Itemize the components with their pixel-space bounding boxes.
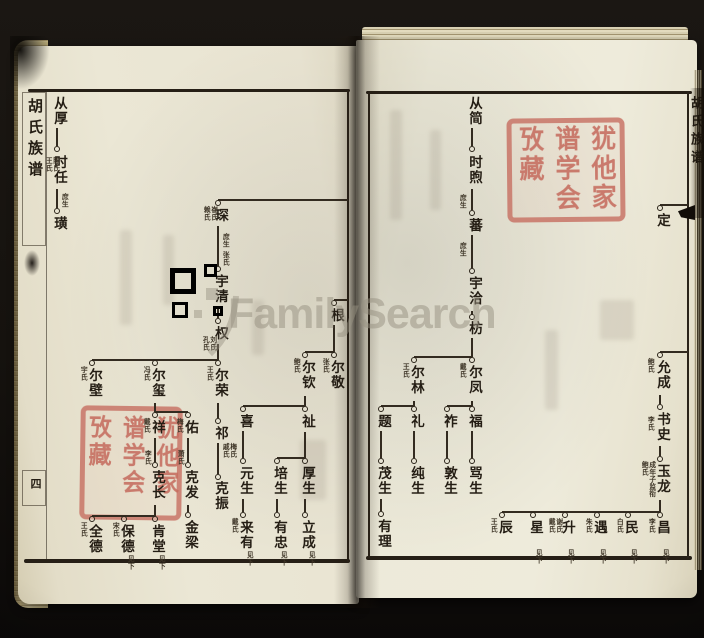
tree-connector-vline	[659, 500, 660, 512]
generation-node-circle	[657, 456, 664, 463]
tree-connector-vline	[56, 189, 57, 208]
person-name-label: 祉	[296, 414, 314, 429]
person-name-label: 礼	[405, 414, 423, 429]
generation-node-circle	[185, 412, 192, 419]
small-annotation: 李氏	[647, 518, 654, 533]
generation-node-circle	[499, 512, 506, 519]
small-annotation: 戴氏	[458, 363, 465, 378]
tree-connector-hline	[218, 199, 348, 200]
person-name-label: 从简	[463, 96, 481, 126]
small-annotation: 见下	[245, 551, 252, 566]
tree-connector-vline	[304, 432, 305, 458]
tree-connector-vline	[242, 499, 243, 512]
tree-connector-vline	[413, 431, 414, 458]
small-annotation: 鲍氏	[646, 358, 653, 373]
generation-node-circle	[444, 406, 451, 413]
person-name-label: 克长	[146, 470, 164, 500]
generation-node-circle	[54, 208, 61, 215]
generation-node-circle	[411, 357, 418, 364]
person-name-label: 时煦	[463, 155, 481, 185]
person-name-label: 祁	[209, 426, 227, 441]
generation-node-circle	[411, 406, 418, 413]
person-name-label: 骂生	[463, 466, 481, 496]
person-name-label: 厚生	[296, 466, 314, 496]
tree-connector-vline	[471, 128, 472, 146]
person-name-label: 璜	[48, 216, 66, 231]
small-annotation: 谢氏戴氏	[547, 518, 562, 534]
small-annotation: 见下	[279, 551, 286, 566]
small-annotation: 李氏	[143, 450, 150, 465]
person-name-label: 茂生	[372, 466, 390, 496]
generation-node-circle	[444, 458, 451, 465]
small-annotation: 戴氏	[142, 418, 149, 433]
generation-node-circle	[185, 512, 192, 519]
generation-node-circle	[215, 418, 222, 425]
tree-connector-hline	[660, 204, 688, 205]
small-annotation: 见下	[661, 549, 668, 564]
tree-connector-vline	[380, 431, 381, 458]
generation-node-circle	[469, 406, 476, 413]
small-annotation: 白氏	[615, 518, 622, 533]
tree-connector-vline	[276, 499, 277, 512]
generation-node-circle	[240, 512, 247, 519]
tree-connector-vline	[154, 438, 155, 462]
generation-node-circle	[215, 318, 222, 325]
tree-connector-hline	[447, 405, 472, 406]
generation-node-circle	[657, 512, 664, 519]
generation-node-circle	[302, 352, 309, 359]
small-annotation: 庶生	[221, 233, 228, 248]
person-name-label: 有忠	[268, 520, 286, 550]
generation-node-circle	[657, 352, 664, 359]
person-name-label: 肯堂	[146, 524, 164, 554]
generation-node-circle	[657, 404, 664, 411]
tree-connector-vline	[154, 403, 155, 412]
small-annotation: 成年子监衔鲍氏	[640, 461, 655, 499]
generation-node-circle	[331, 352, 338, 359]
tree-connector-vline	[154, 505, 155, 516]
small-annotation: 陈氏王氏	[44, 157, 59, 173]
small-annotation: 张氏	[321, 358, 328, 373]
small-annotation: 见下	[307, 551, 314, 566]
tree-connector-vline	[242, 431, 243, 458]
tree-connector-vline	[471, 338, 472, 357]
small-annotation: 宇氏	[79, 366, 86, 381]
person-name-label: 元生	[234, 466, 252, 496]
person-name-label: 有理	[372, 519, 390, 549]
tree-connector-vline	[333, 325, 334, 352]
person-name-label: 根	[325, 308, 343, 323]
tree-connector-vline	[380, 499, 381, 511]
generation-node-circle	[657, 205, 664, 212]
tree-connector-hline	[155, 411, 188, 412]
small-annotation: 李氏	[646, 416, 653, 431]
generation-node-circle	[152, 462, 159, 469]
generation-node-circle	[469, 146, 476, 153]
small-annotation: 王氏	[79, 522, 86, 537]
person-name-label: 福	[463, 414, 481, 429]
generation-node-circle	[378, 406, 385, 413]
small-annotation: 萧氏	[176, 450, 183, 465]
person-name-label: 从厚	[48, 96, 66, 126]
generation-node-circle	[411, 458, 418, 465]
generation-node-circle	[89, 516, 96, 523]
tree-connector-vline	[217, 309, 218, 318]
generation-node-circle	[378, 511, 385, 518]
tree-connector-vline	[217, 226, 218, 266]
tree-connector-hline	[243, 405, 305, 406]
person-name-label: 纯生	[405, 466, 423, 496]
small-annotation: 王氏	[205, 366, 212, 381]
small-annotation: 见下	[566, 549, 573, 564]
small-annotation: 见下	[126, 555, 133, 570]
generation-node-circle	[215, 474, 222, 481]
tree-connector-vline	[187, 438, 188, 462]
generation-node-circle	[302, 406, 309, 413]
book-photo: 犹他家谱学会攷藏 犹他家谱学会攷藏 胡氏族谱 四 胡氏族谱 从厚时任璜琛宇清权尔…	[0, 0, 704, 638]
tree-connector-vline	[659, 446, 660, 456]
generation-node-circle	[215, 360, 222, 367]
tree-connector-vline	[471, 189, 472, 210]
tree-connector-vline	[304, 396, 305, 406]
small-annotation: 梅氏戚氏	[221, 443, 236, 459]
person-name-label: 喜	[234, 414, 252, 429]
tree-connector-vline	[471, 235, 472, 268]
generation-node-circle	[331, 300, 338, 307]
person-name-label: 蕃	[463, 218, 481, 233]
tree-connector-vline	[217, 403, 218, 418]
generation-node-circle	[378, 458, 385, 465]
generation-node-circle	[469, 357, 476, 364]
person-name-label: 定	[651, 213, 669, 228]
generation-node-circle	[530, 512, 537, 519]
generation-node-circle	[240, 406, 247, 413]
generation-node-circle	[215, 266, 222, 273]
small-annotation: 庶生	[458, 194, 465, 209]
tree-connector-vline	[471, 431, 472, 458]
small-annotation: 王氏	[489, 518, 496, 533]
generation-node-circle	[469, 268, 476, 275]
person-name-label: 题	[372, 414, 390, 429]
generation-node-circle	[152, 516, 159, 523]
tree-connector-hline	[660, 351, 688, 352]
small-annotation: 冯氏	[142, 366, 149, 381]
person-name-label: 克振	[209, 481, 227, 511]
small-annotation: 王氏	[401, 363, 408, 378]
generation-node-circle	[302, 458, 309, 465]
tree-connector-hline	[414, 356, 472, 357]
person-name-label: 立成	[296, 520, 314, 550]
tree-connector-vline	[217, 443, 218, 474]
small-annotation: 朱氏	[584, 518, 591, 533]
small-annotation: 宋氏	[111, 522, 118, 537]
small-annotation: 崔氏赖氏	[202, 206, 217, 222]
person-name-label: 星	[524, 520, 542, 535]
small-annotation: 见下	[598, 549, 605, 564]
person-name-label: 敦生	[438, 466, 456, 496]
tree-connector-hline	[381, 405, 414, 406]
tree-connector-hline	[277, 457, 305, 458]
generation-node-circle	[54, 146, 61, 153]
generation-node-circle	[469, 458, 476, 465]
generation-node-circle	[240, 458, 247, 465]
generation-node-circle	[89, 360, 96, 367]
small-annotation: 张氏	[221, 251, 228, 266]
small-annotation: 鲍氏	[292, 358, 299, 373]
small-annotation: 梅氏	[175, 418, 182, 433]
person-name-label: 克发	[179, 470, 197, 500]
person-name-label: 宇清	[209, 274, 227, 304]
person-name-label: 宇洽	[463, 276, 481, 306]
generation-node-circle	[469, 210, 476, 217]
small-annotation: 戴氏	[230, 518, 237, 533]
small-annotation: 刘氏孔氏	[201, 336, 216, 352]
person-name-label: 祚	[438, 414, 456, 429]
generation-node-circle	[469, 314, 476, 321]
generation-node-circle	[625, 512, 632, 519]
tree-connector-hline	[502, 511, 660, 512]
tree-connector-vline	[217, 344, 218, 360]
tree-connector-vline	[446, 431, 447, 458]
generation-node-circle	[121, 516, 128, 523]
tree-connector-hline	[305, 351, 334, 352]
generation-node-circle	[152, 360, 159, 367]
tree-connector-vline	[304, 499, 305, 512]
generation-node-circle	[185, 462, 192, 469]
tree-connector-vline	[659, 395, 660, 404]
small-annotation: 庶生	[60, 193, 67, 208]
small-annotation: 庶生	[458, 242, 465, 257]
small-annotation: 见下	[534, 549, 541, 564]
small-annotation: 见下	[157, 555, 164, 570]
generation-node-circle	[594, 512, 601, 519]
generation-node-circle	[274, 458, 281, 465]
generation-node-circle	[152, 412, 159, 419]
person-name-label: 枋	[463, 321, 481, 336]
person-name-label: 培生	[268, 466, 286, 496]
generation-node-circle	[302, 512, 309, 519]
tree-connector-vline	[56, 128, 57, 146]
person-name-label: 金梁	[179, 520, 197, 550]
small-annotation: 见下	[629, 549, 636, 564]
tree-layer: 从厚时任璜琛宇清权尔壁尔玺尔荣祁克振祥佑克长克发金梁全德保德肯堂根尔敬尔钦喜祉元…	[0, 0, 704, 638]
generation-node-circle	[274, 512, 281, 519]
tree-connector-vline	[187, 505, 188, 512]
